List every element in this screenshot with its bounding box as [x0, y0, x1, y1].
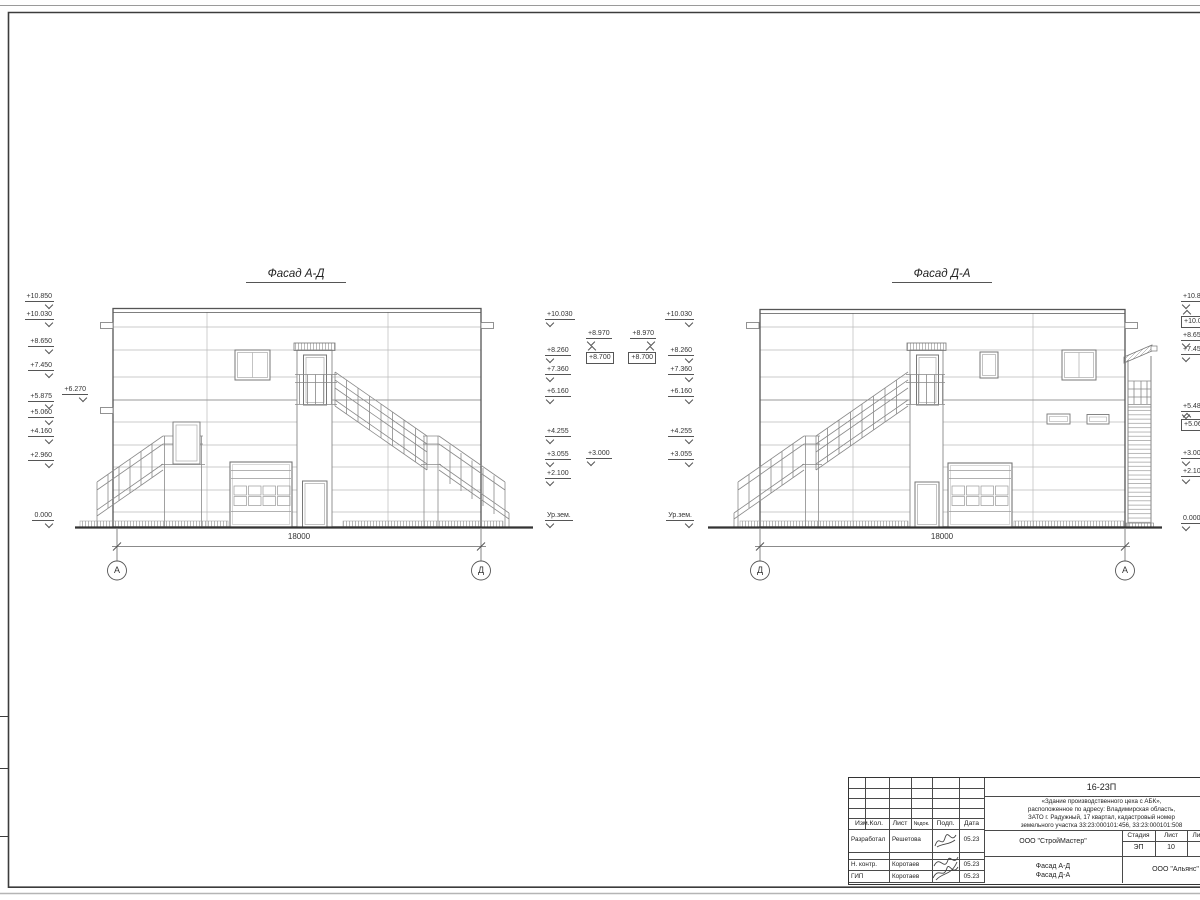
elevation-mark: +4.255: [658, 428, 694, 437]
elevation-mark: +2.960: [18, 452, 54, 461]
tb-row-name: Решетова: [892, 836, 921, 843]
tb-sheet-label: Лист: [1155, 832, 1187, 839]
elevation-mark: Ур.зем.: [545, 512, 585, 521]
elevation-mark: +10.030: [1181, 316, 1200, 328]
tb-row-role: Н. контр.: [851, 861, 877, 868]
elevation-mark: +10.030: [658, 311, 694, 320]
tb-line: [984, 796, 1200, 797]
title-block: Изм.Кол. Лист №док. Подп. Дата Разработа…: [848, 777, 1200, 885]
elevation-mark: 0.000: [1181, 515, 1200, 524]
tb-line: [889, 778, 890, 883]
tb-description-line: «Здание производственного цеха с АБК»,: [987, 798, 1200, 806]
elevation-mark: +10.850: [1181, 293, 1200, 302]
facade-title-right: Фасад Д-А: [892, 268, 992, 283]
axis-bubble: Д: [750, 560, 770, 580]
tb-doc-title-line: Фасад А-Д: [984, 863, 1122, 872]
elevation-mark: +7.450: [18, 362, 54, 371]
elevation-mark: +8.260: [545, 347, 585, 356]
elevation-mark: +10.030: [18, 311, 54, 320]
elevation-mark: +10.030: [545, 311, 585, 320]
elevation-mark: +3.000: [586, 450, 622, 459]
elevation-mark: +7.360: [545, 366, 585, 375]
tb-org: ООО "СтройМастер": [984, 838, 1122, 845]
elevation-mark: +4.255: [545, 428, 585, 437]
tb-row-date: 05.23: [959, 873, 984, 880]
tb-description-line: ЗАТО г. Радужный, 17 квартал, кадастровы…: [987, 814, 1200, 822]
elevation-mark: 0.000: [18, 512, 54, 521]
elevation-mark: +6.270: [56, 386, 88, 395]
elevation-mark: +8.970: [586, 330, 622, 339]
tb-description-line: расположенное по адресу: Владимирская об…: [987, 806, 1200, 814]
tb-row-name: Коротаев: [892, 861, 919, 868]
signature-icon: [931, 854, 961, 882]
axis-bubble: А: [1115, 560, 1135, 580]
tb-line: [849, 818, 984, 819]
tb-row-name: Коротаев: [892, 873, 919, 880]
drawing-sheet: Фасад А-Д Фасад Д-А 18000 18000 А Д Д А …: [0, 0, 1200, 900]
elevation-mark: +3.055: [545, 451, 585, 460]
tb-col-izm-kol: Изм.Кол.: [849, 820, 889, 827]
tb-line: [849, 870, 984, 871]
tb-row-date: 05.23: [959, 836, 984, 843]
elevation-mark: +5.485: [1181, 403, 1200, 412]
tb-row-role: Разработал: [851, 836, 885, 843]
tb-doc-code: 16-23П: [984, 782, 1200, 792]
tb-sheets-label: Листов: [1187, 832, 1200, 839]
tb-line: [1122, 841, 1200, 842]
tb-line: [849, 798, 984, 799]
elevation-mark: +6.160: [658, 388, 694, 397]
axis-bubble: Д: [471, 560, 491, 580]
elevation-mark: +2.100: [545, 470, 585, 479]
tb-stage-value: ЭП: [1122, 844, 1155, 851]
elevation-mark: +8.700: [620, 352, 656, 364]
tb-description-line: земельного участка 33:23:000101:456, 33:…: [987, 822, 1200, 830]
elevation-mark: +2.100: [1181, 468, 1200, 477]
dimension-label: 18000: [912, 532, 972, 541]
tb-col-ndok: №док.: [911, 821, 932, 827]
elevation-mark: +7.450: [1181, 346, 1200, 355]
tb-doc-title-line: Фасад Д-А: [984, 872, 1122, 881]
elevation-mark: +8.970: [620, 330, 656, 339]
tb-col-podp: Подп.: [932, 820, 959, 827]
elevation-mark: +8.260: [658, 347, 694, 356]
elevation-mark: +4.160: [18, 428, 54, 437]
elevation-mark: +5.060: [18, 409, 54, 418]
tb-client: ООО "Альянс": [1127, 866, 1200, 873]
tb-line: [849, 808, 984, 809]
elevation-mark: +7.360: [658, 366, 694, 375]
tb-line: [849, 882, 984, 883]
tb-col-data: Дата: [959, 820, 984, 827]
dimension-label: 18000: [269, 532, 329, 541]
elevation-mark: +5.060: [1181, 419, 1200, 431]
tb-row-date: 05.23: [959, 861, 984, 868]
elevation-mark: +5.875: [18, 393, 54, 402]
tb-stage-label: Стадия: [1122, 832, 1155, 839]
tb-sheet-value: 10: [1155, 844, 1187, 851]
tb-line: [984, 856, 1200, 857]
tb-line: [849, 859, 984, 860]
elevation-mark: +8.700: [586, 352, 622, 364]
facade-title-left: Фасад А-Д: [246, 268, 346, 283]
axis-bubble: А: [107, 560, 127, 580]
tb-row-role: ГИП: [851, 873, 863, 880]
elevation-mark: Ур.зем.: [658, 512, 694, 521]
elevation-mark: +10.850: [18, 293, 54, 302]
tb-line: [984, 830, 1200, 831]
tb-line: [849, 852, 984, 853]
tb-line: [849, 829, 984, 830]
tb-line: [849, 788, 984, 789]
elevation-mark: +6.160: [545, 388, 585, 397]
tb-col-list: Лист: [889, 820, 911, 827]
elevation-mark: +8.650: [1181, 332, 1200, 341]
signature-icon: [933, 830, 959, 852]
elevation-mark: +8.650: [18, 338, 54, 347]
elevation-mark: +3.055: [658, 451, 694, 460]
elevation-mark: +3.000: [1181, 450, 1200, 459]
tb-sheets-value: 1: [1187, 844, 1200, 851]
